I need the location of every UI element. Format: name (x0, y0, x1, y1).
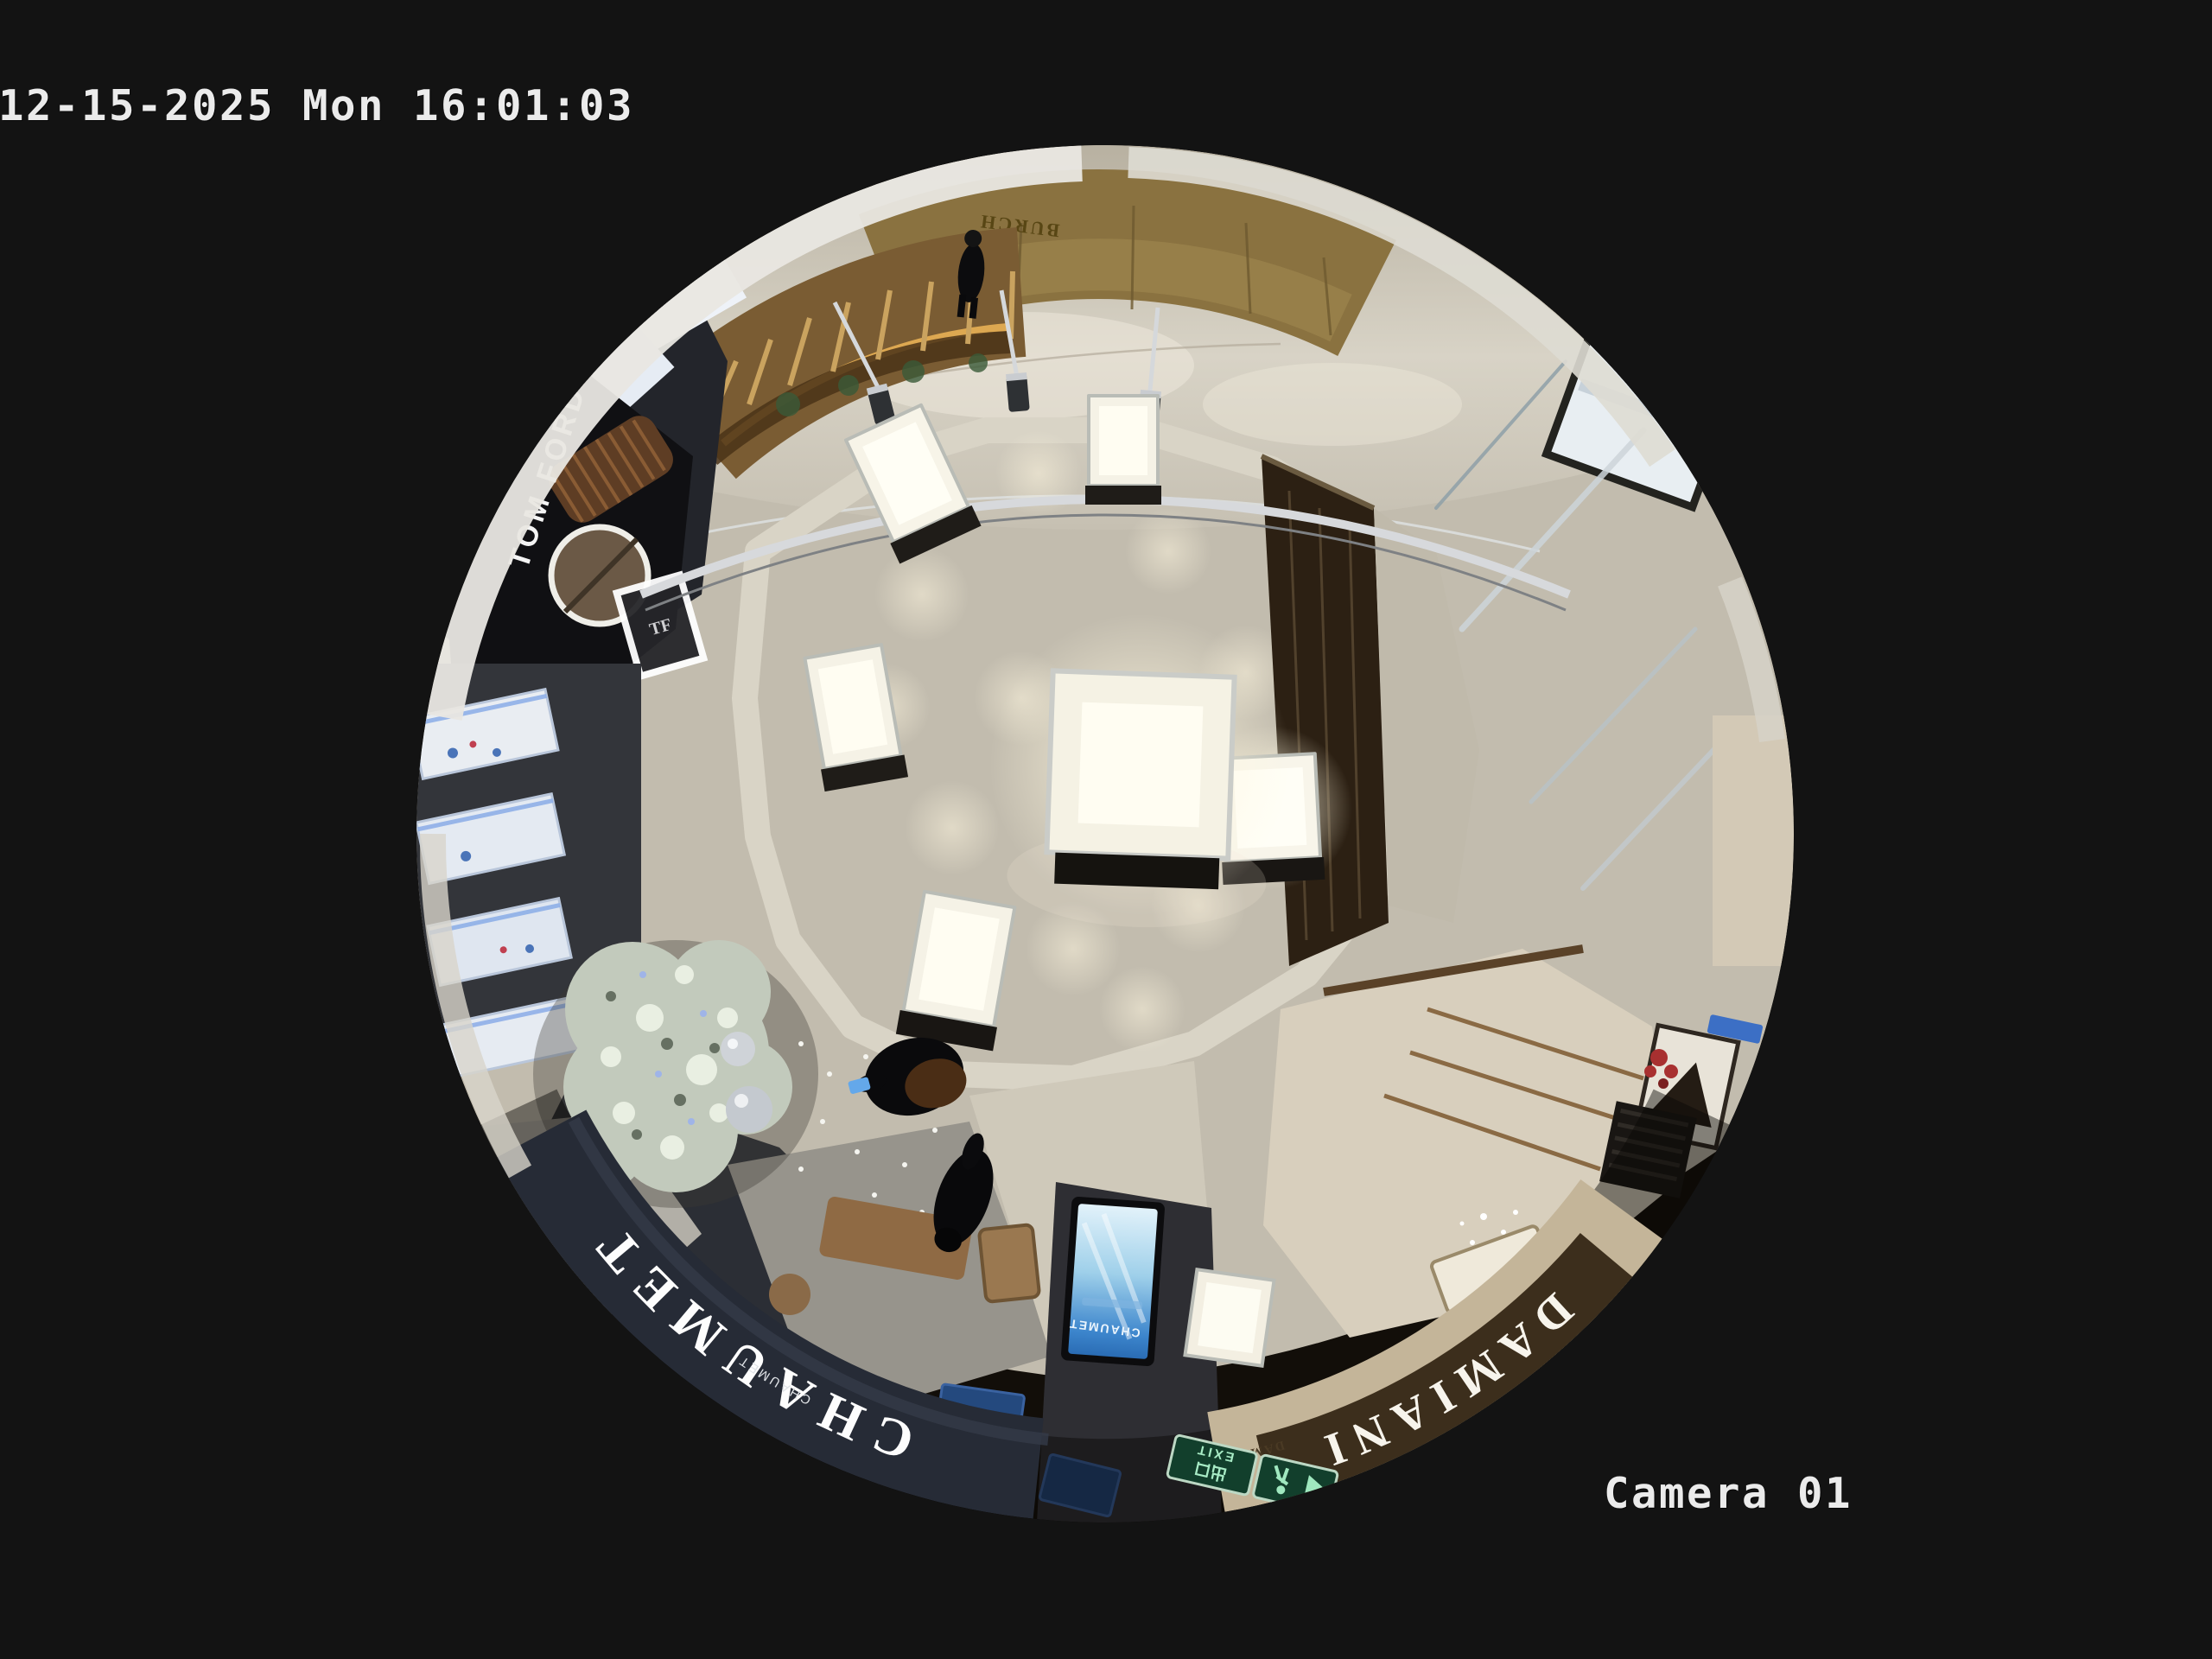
display-case (1185, 1269, 1274, 1366)
digital-signage-screen: CHAUMET (1061, 1196, 1166, 1366)
osd-camera-label: Camera 01 (1604, 1469, 1853, 1518)
far-store-doorway (1630, 188, 1768, 313)
osd-timestamp: 12-15-2025 Mon 16:01:03 (0, 81, 634, 130)
cctv-frame: 12-15-2025 Mon 16:01:03 (0, 0, 2212, 1659)
fisheye-view: BURCH (416, 145, 1794, 1522)
right-pillar (1713, 715, 1794, 966)
ornament-ball (721, 1032, 755, 1066)
display-case (1085, 396, 1161, 505)
ornament-ball (726, 1086, 772, 1133)
